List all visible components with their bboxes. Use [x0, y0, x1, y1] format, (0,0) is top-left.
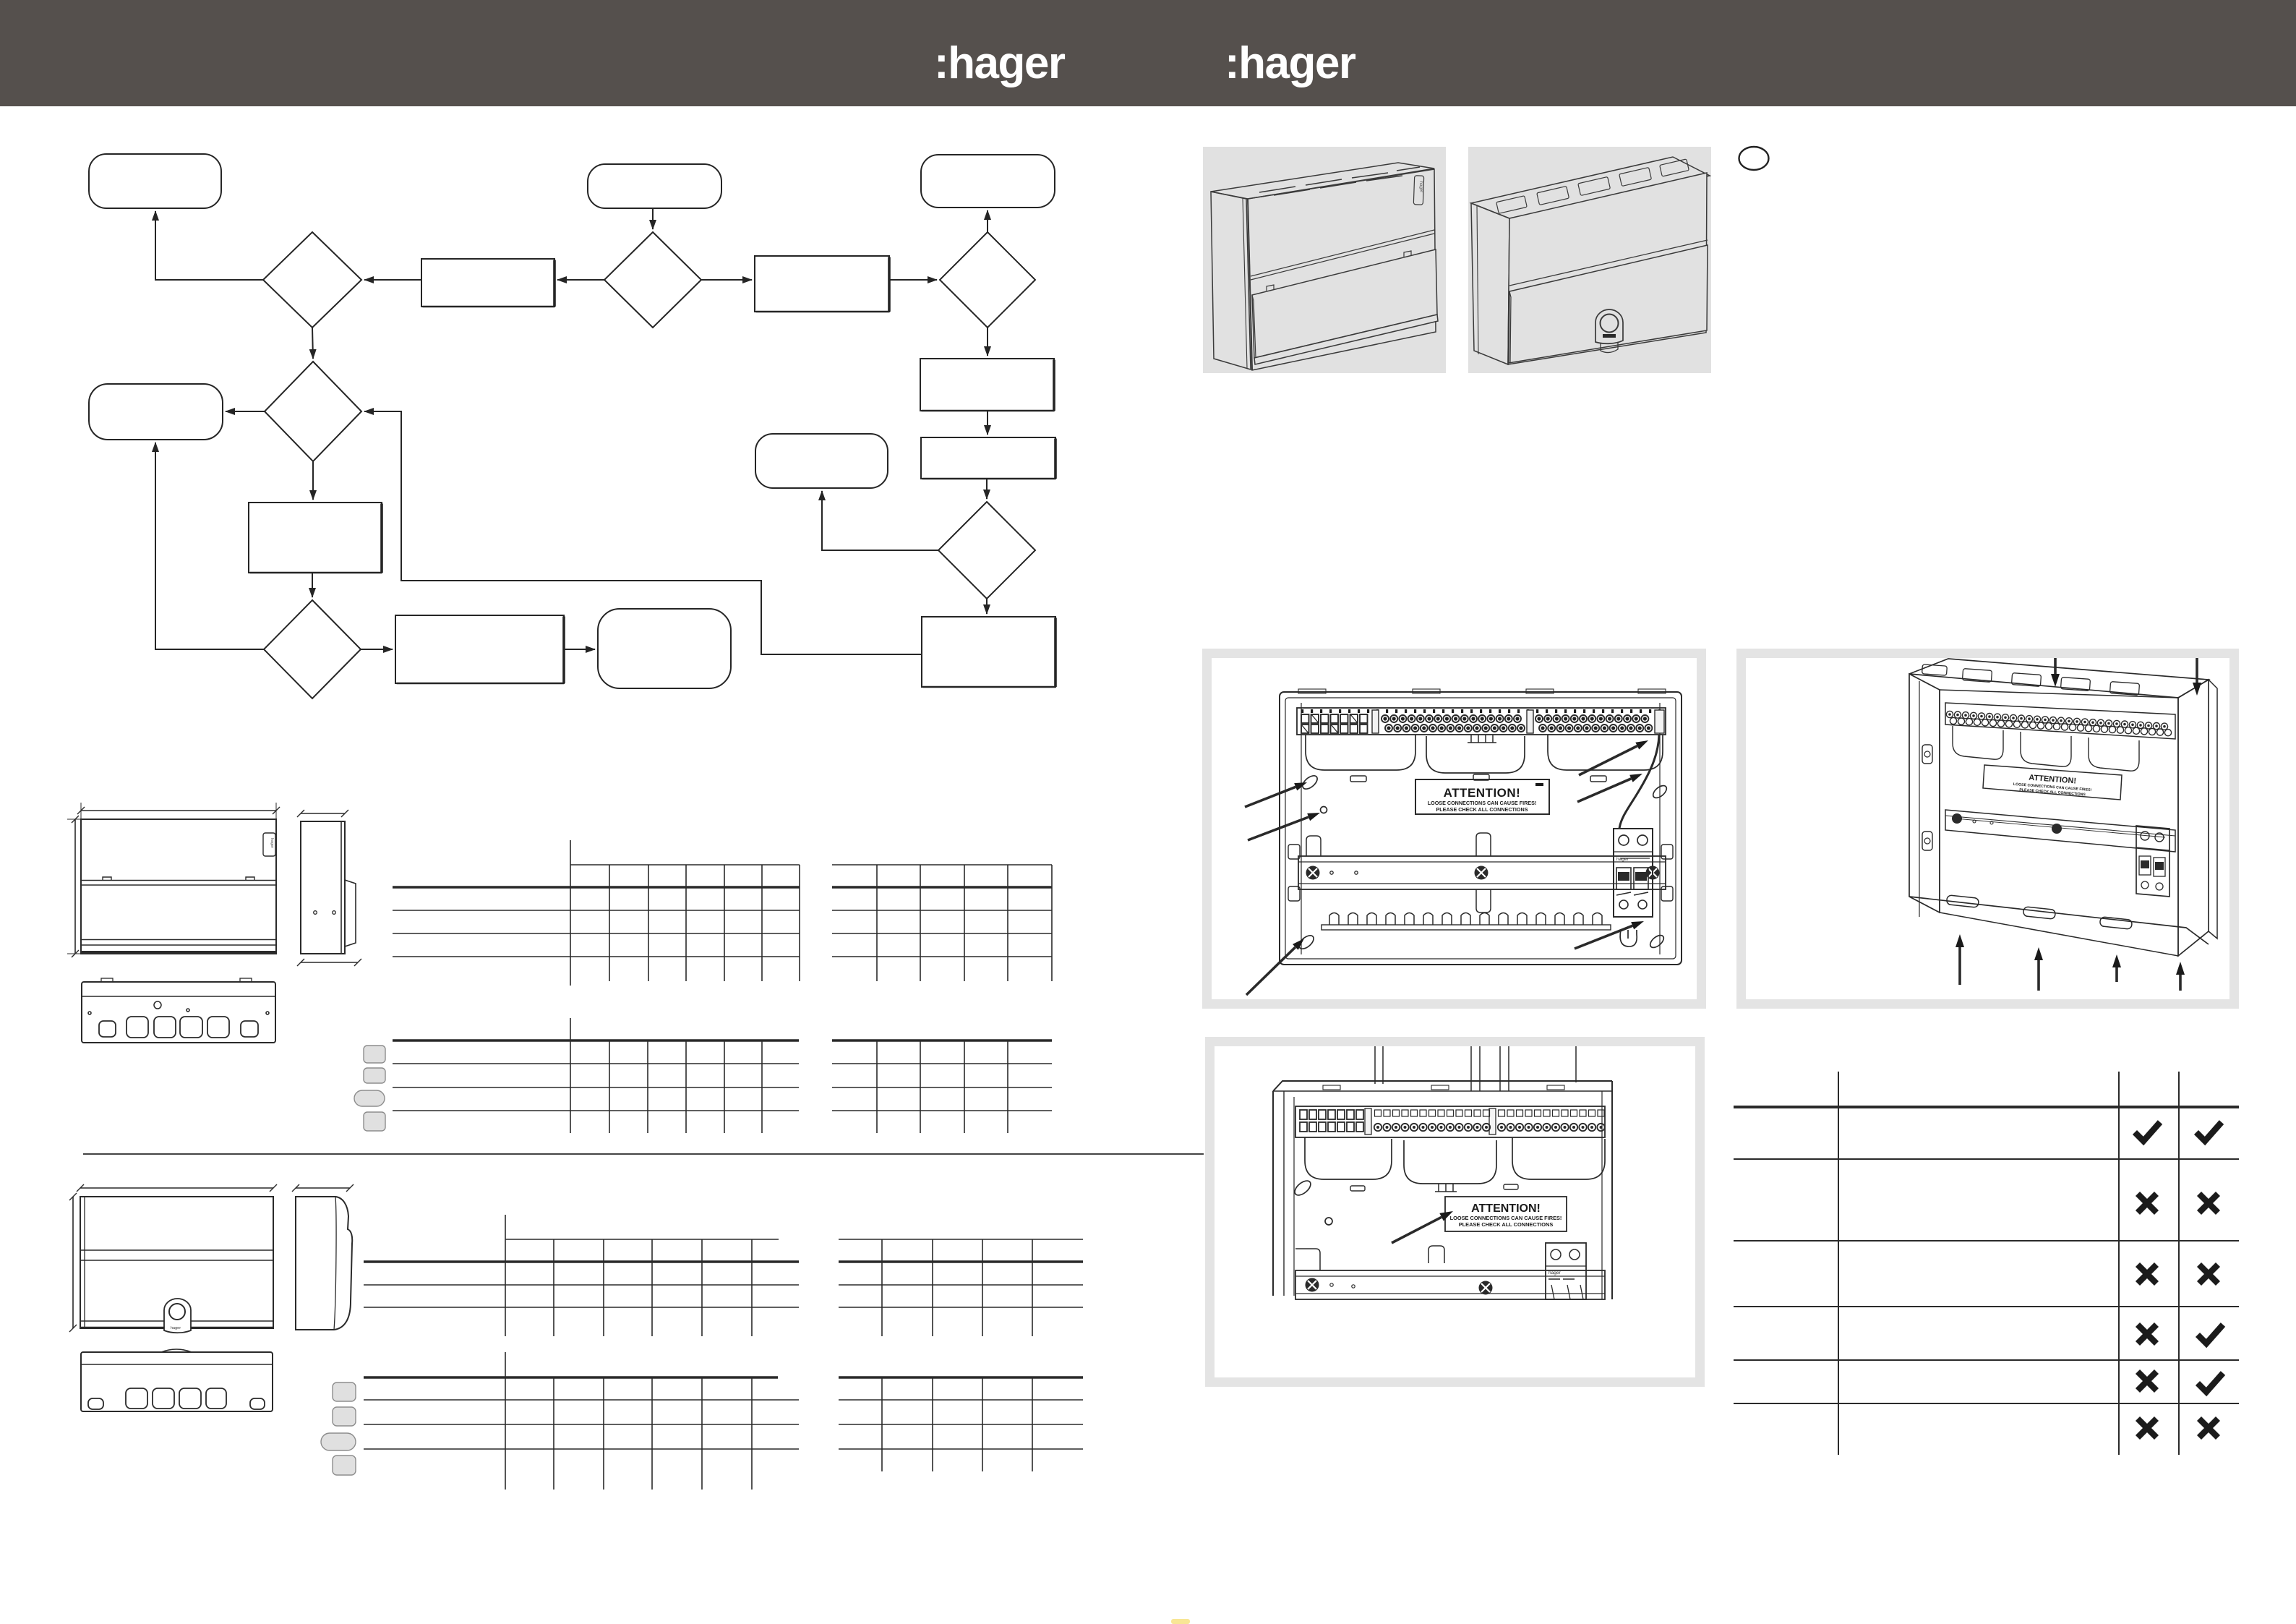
svg-text:hager: hager	[270, 838, 274, 848]
svg-text:hager: hager	[1616, 857, 1629, 862]
svg-text:LOOSE CONNECTIONS CAN CAUSE FI: LOOSE CONNECTIONS CAN CAUSE FIRES!	[1428, 800, 1537, 806]
svg-text:ATTENTION!: ATTENTION!	[1471, 1202, 1541, 1215]
svg-text:hager: hager	[1548, 1270, 1561, 1275]
svg-text:ATTENTION!: ATTENTION!	[1444, 786, 1521, 800]
svg-text:PLEASE CHECK ALL CONNECTIONS: PLEASE CHECK ALL CONNECTIONS	[1459, 1221, 1554, 1228]
svg-text:PLEASE CHECK ALL CONNECTIONS: PLEASE CHECK ALL CONNECTIONS	[1436, 806, 1528, 813]
svg-text:LOOSE CONNECTIONS CAN CAUSE FI: LOOSE CONNECTIONS CAN CAUSE FIRES!	[1450, 1215, 1562, 1221]
svg-text:hager: hager	[1418, 181, 1423, 193]
svg-text:hager: hager	[171, 1326, 181, 1330]
